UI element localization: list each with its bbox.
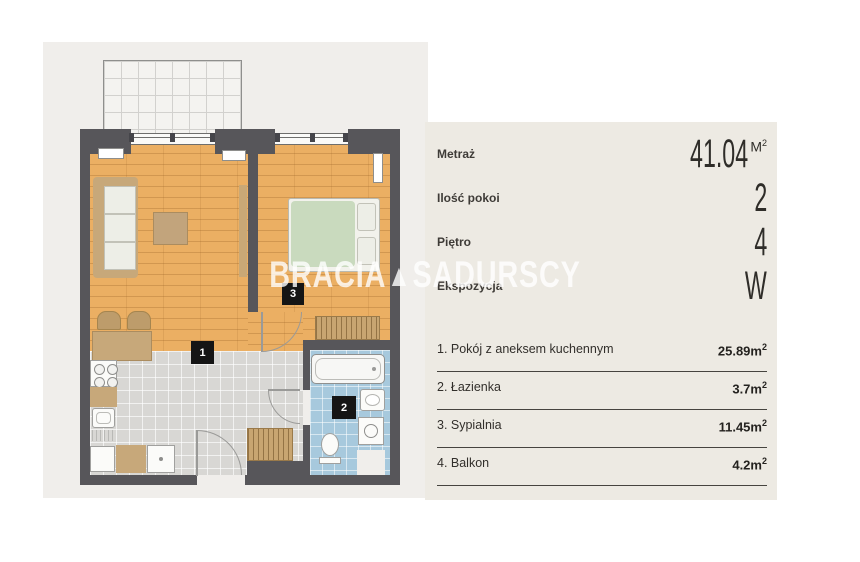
unit-base: m	[750, 343, 762, 358]
sofa-cushion	[104, 214, 136, 242]
radiator-bedroom	[373, 153, 383, 183]
sofa-cushion	[104, 186, 136, 214]
wall-bottom-block	[247, 461, 305, 475]
washing-machine	[358, 417, 384, 445]
room-name: 1. Pokój z aneksem kuchennym	[437, 342, 613, 356]
wall-bedroom-bathroom	[303, 340, 400, 350]
unit-base: m	[750, 381, 762, 396]
hall-wardrobe	[247, 428, 293, 461]
area-number: 4.2	[732, 457, 750, 472]
toilet	[321, 433, 339, 456]
dining-chair	[97, 311, 121, 330]
bed	[288, 198, 380, 272]
spec-number: W	[745, 266, 767, 306]
wall-right	[390, 129, 400, 485]
unit-sup: 2	[762, 380, 767, 390]
room-name: 3. Sypialnia	[437, 418, 502, 432]
wall-hall-bathroom-upper	[303, 350, 310, 390]
room-name: 4. Balkon	[437, 456, 489, 470]
balcony	[103, 60, 242, 135]
bed-pillow	[357, 237, 376, 265]
room-name: 2. Łazienka	[437, 380, 501, 394]
unit-sup: 2	[762, 138, 767, 148]
spec-row-pokoje: Ilość pokoi 2	[437, 176, 767, 220]
window-frame-mark	[275, 133, 280, 142]
room-row: 1. Pokój z aneksem kuchennym 25.89m2	[437, 334, 767, 372]
spec-row-ekspozycja: Ekspozycja W	[437, 264, 767, 308]
floor-plan: 1 2 3	[43, 42, 428, 498]
sofa	[93, 177, 138, 278]
property-info-panel: Metraż 41.04 M2 Ilość pokoi 2 Piętro 4 E	[425, 122, 777, 500]
unit-sup: 2	[762, 342, 767, 352]
bed-pillow	[357, 203, 376, 231]
unit-base: m	[750, 457, 762, 472]
spec-value: 41.04 M2	[648, 134, 767, 174]
wall-partition-living-bedroom	[248, 143, 258, 312]
room-area: 4.2m2	[732, 456, 767, 472]
room-area: 3.7m2	[732, 380, 767, 396]
kitchen-sink	[92, 408, 115, 428]
spec-row-metraz: Metraż 41.04 M2	[437, 132, 767, 176]
unit-sup: 2	[762, 456, 767, 466]
bed-duvet	[291, 201, 355, 267]
room-label-1: 1	[191, 341, 214, 364]
room-label-3: 3	[282, 283, 304, 305]
sink-drainer	[92, 430, 115, 441]
floorplan-listing-page: 1 2 3 Metraż 41.04 M2 Ilość pokoi 2 Pięt…	[0, 0, 860, 562]
window-frame-mark	[129, 133, 134, 142]
dining-table	[92, 331, 152, 361]
spec-label: Ekspozycja	[437, 279, 502, 293]
stove	[90, 360, 117, 387]
unit-base: M	[750, 139, 762, 155]
room-area: 11.45m2	[719, 418, 767, 434]
spec-value: W	[729, 266, 767, 306]
stove-burner	[94, 364, 105, 375]
wall-hall-bathroom-lower	[303, 425, 310, 475]
spec-value: 2	[745, 178, 767, 218]
room-row: 2. Łazienka 3.7m2	[437, 372, 767, 410]
area-number: 11.45	[719, 419, 751, 434]
utility-niche	[357, 450, 385, 475]
spec-number: 4	[754, 222, 767, 262]
unit-base: m	[750, 419, 762, 434]
spec-number: 2	[754, 178, 767, 218]
window-frame-mark	[210, 133, 215, 142]
room-row: 4. Balkon 4.2m2	[437, 448, 767, 486]
spec-unit: M2	[750, 134, 767, 156]
wall-left	[80, 129, 90, 485]
spec-list: Metraż 41.04 M2 Ilość pokoi 2 Piętro 4 E	[437, 132, 767, 308]
spec-label: Ilość pokoi	[437, 191, 500, 205]
spec-label: Piętro	[437, 235, 471, 249]
spec-row-pietro: Piętro 4	[437, 220, 767, 264]
area-number: 25.89	[718, 343, 751, 358]
radiator-living-2	[222, 150, 246, 161]
wall-top-right-pillar	[348, 129, 400, 154]
kitchen-counter-2	[116, 445, 146, 473]
window-frame-mark	[310, 133, 315, 142]
area-number: 3.7	[732, 381, 750, 396]
stove-burner	[107, 364, 118, 375]
tv-cabinet	[239, 185, 247, 277]
wall-bottom-left	[80, 475, 197, 485]
unit-sup: 2	[762, 418, 767, 428]
room-label-2: 2	[332, 396, 356, 419]
radiator-living	[98, 148, 124, 159]
bathtub	[311, 354, 385, 384]
spec-value: 4	[745, 222, 767, 262]
dishwasher	[147, 445, 175, 473]
room-list: 1. Pokój z aneksem kuchennym 25.89m2 2. …	[437, 334, 767, 486]
bedroom-wardrobe	[315, 316, 380, 340]
fridge	[90, 446, 115, 472]
sofa-cushion	[104, 242, 136, 270]
dining-chair	[127, 311, 151, 330]
bathroom-sink	[360, 389, 385, 411]
spec-label: Metraż	[437, 147, 475, 161]
coffee-table	[153, 212, 188, 245]
room-row: 3. Sypialnia 11.45m2	[437, 410, 767, 448]
kitchen-counter	[90, 387, 117, 407]
toilet-tank	[319, 457, 341, 464]
window-frame-mark	[170, 133, 175, 142]
wall-bottom-right	[245, 475, 400, 485]
window-frame-mark	[343, 133, 348, 142]
spec-number: 41.04	[690, 134, 748, 174]
room-area: 25.89m2	[718, 342, 767, 358]
